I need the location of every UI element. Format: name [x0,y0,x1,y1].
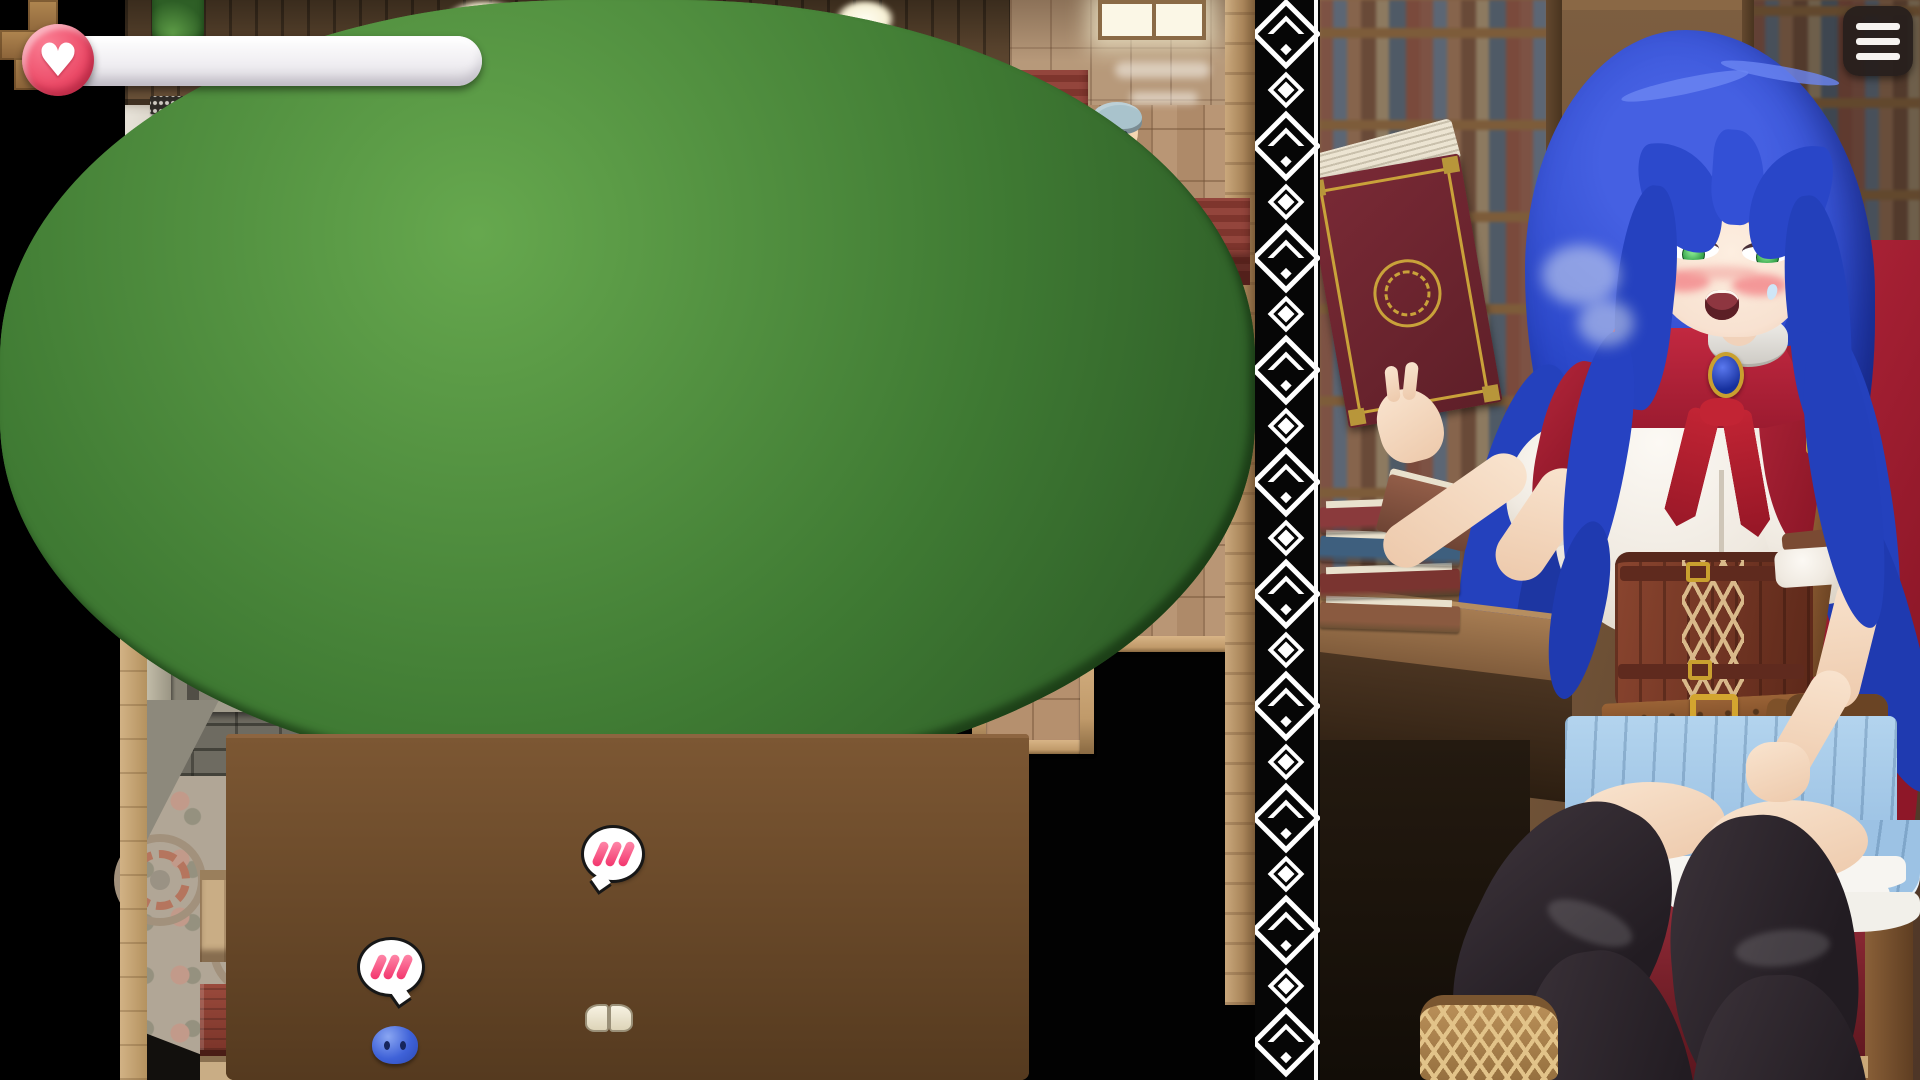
divider-diamond-large [1255,1007,1320,1078]
corset-lacing [1682,560,1744,710]
book-corner [1348,408,1367,427]
divider-diamond-large [1255,559,1320,630]
divider-diamond-small [1267,72,1304,109]
light-streak [1130,92,1198,104]
emotion-bubble [360,940,422,994]
sigh-steam [1578,300,1634,346]
side-wood-trim [120,628,147,1080]
gem-brooch [1708,352,1744,398]
menu-button[interactable] [1843,6,1913,76]
divider-diamond-small [1267,408,1304,445]
divider-edge-line [1314,0,1318,1080]
floor-pattern-tiles [0,94,64,188]
heart-icon: ♥ [22,24,94,96]
hamburger-menu-icon [1856,23,1900,30]
corset-buckle [1688,660,1712,680]
blush-bridge [1688,266,1758,280]
sigh-steam [1542,245,1620,305]
divider-diamond-large [1255,895,1320,966]
emotion-bubble [584,828,642,880]
corset-buckle [1686,562,1710,582]
potted-plant [0,264,52,340]
divider-diamond-large [1255,447,1320,518]
bush [0,0,1255,778]
nook-window [1098,0,1206,40]
divider-diamond-small [1267,296,1304,333]
divider-diamond-large [1255,0,1320,69]
divider-diamond-large [1255,783,1320,854]
lace-up-boot [1420,995,1558,1080]
hamburger-menu-icon [1856,53,1900,60]
divider-diamond-small [1267,744,1304,781]
divider-diamond-small [1267,184,1304,221]
hamburger-menu-icon [1856,38,1900,45]
divider-diamond-large [1255,335,1320,406]
heart-glyph: ♥ [37,37,78,83]
open-mouth [1705,290,1739,320]
book-corner [1442,156,1461,175]
divider-diamond-small [1267,856,1304,893]
affection-gauge: ♥ [22,22,492,98]
hand-left [1746,742,1810,802]
gauge-bar [54,36,482,86]
book-corner [1482,384,1501,403]
divider-diamond-small [1267,968,1304,1005]
screen: ♥ [0,0,1920,1080]
blue-slime[interactable] [372,1026,418,1064]
divider-diamond-large [1255,111,1320,182]
divider-diamond-small [1267,632,1304,669]
divider-diamond-small [1267,520,1304,557]
ribbon-knot [1700,398,1744,426]
divider-diamond-large [1255,223,1320,294]
decorative-divider [1255,0,1320,1080]
divider-diamond-large [1255,671,1320,742]
character-portrait-panel [1320,0,1920,1080]
diamond-chain-pattern [1255,2,1316,1080]
light-streak [1115,62,1210,78]
game-viewport[interactable] [0,0,1255,1080]
open-book[interactable] [585,1004,633,1032]
